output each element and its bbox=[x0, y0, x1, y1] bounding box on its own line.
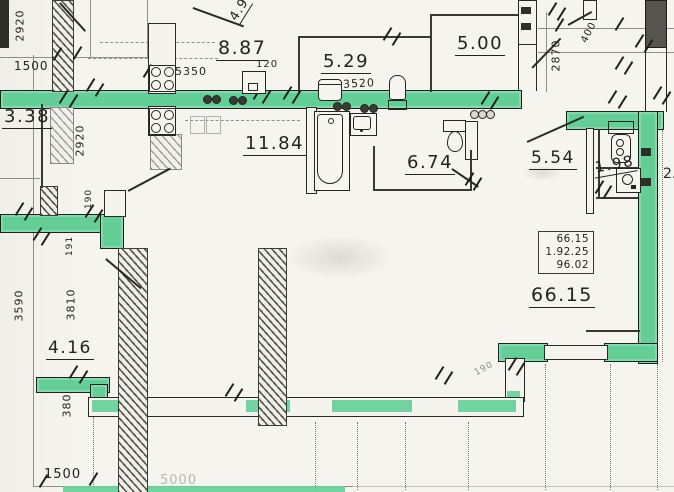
dimension-label: 2870 bbox=[550, 40, 563, 72]
door-mark bbox=[333, 102, 342, 111]
partition-line bbox=[373, 146, 375, 191]
axis-line bbox=[545, 364, 546, 490]
dimension-label: 5000 bbox=[160, 473, 197, 488]
break-mark bbox=[383, 27, 393, 41]
leader-line bbox=[128, 168, 171, 192]
door-mark bbox=[342, 102, 351, 111]
gas-stove-icon bbox=[149, 65, 176, 92]
wall-highlight-patch bbox=[332, 400, 412, 412]
room-area-label: 5.54 bbox=[529, 148, 577, 170]
counter-unit bbox=[206, 116, 221, 134]
dimension-label: 120 bbox=[256, 59, 278, 70]
break-mark bbox=[635, 34, 645, 48]
break-mark bbox=[548, 2, 558, 16]
room-area-label: 8.87 bbox=[216, 37, 268, 61]
dimension-label: 1500 bbox=[44, 467, 81, 482]
room-area-label: 2. bbox=[663, 166, 674, 182]
break-mark bbox=[435, 366, 445, 380]
partition-line bbox=[430, 14, 518, 16]
counter-line bbox=[88, 58, 148, 59]
washbasin-icon bbox=[350, 113, 377, 136]
door-mark bbox=[212, 95, 221, 104]
dimension-line bbox=[0, 178, 40, 179]
wall-end-piece bbox=[0, 0, 9, 48]
partition-line bbox=[298, 36, 430, 38]
counter-line bbox=[174, 58, 218, 59]
break-mark bbox=[41, 232, 51, 246]
hatched-wall bbox=[118, 248, 148, 492]
partition-line bbox=[430, 14, 432, 92]
axis-line bbox=[610, 364, 611, 490]
door-mark bbox=[486, 110, 495, 119]
area-table: 66.15 1.92.25 96.02 bbox=[538, 231, 594, 274]
water-heater-icon bbox=[389, 75, 406, 100]
dimension-label: 3590 bbox=[13, 284, 26, 328]
dimension-tick bbox=[555, 18, 565, 32]
door-mark bbox=[238, 96, 247, 105]
partition-line bbox=[586, 330, 640, 332]
dimension-label: 380 bbox=[61, 389, 74, 423]
break-mark bbox=[624, 61, 634, 75]
partition-line bbox=[373, 189, 472, 191]
gas-stove-icon bbox=[149, 108, 176, 135]
door-mark bbox=[641, 148, 651, 156]
dimension-label: 2920 bbox=[74, 119, 87, 163]
column-mark bbox=[521, 23, 531, 30]
bathtub-icon bbox=[314, 111, 350, 191]
axis-line bbox=[657, 364, 658, 490]
load-bearing-wall bbox=[100, 214, 124, 249]
room-area-label: 3.38 bbox=[2, 106, 52, 129]
washing-machine-icon bbox=[318, 79, 342, 101]
pier-column bbox=[583, 0, 597, 20]
door-mark bbox=[229, 96, 238, 105]
axis-line bbox=[468, 422, 469, 490]
area-table-row: 66.15 bbox=[543, 233, 589, 246]
dimension-line bbox=[90, 0, 91, 57]
axis-line bbox=[662, 130, 663, 362]
break-mark bbox=[618, 95, 628, 109]
dimension-label: 190 bbox=[473, 360, 496, 378]
bottom-highlight-bar bbox=[63, 486, 345, 492]
kitchen-sink-icon bbox=[242, 71, 266, 94]
partition-wall bbox=[544, 345, 608, 360]
room-area-label: 5.00 bbox=[455, 33, 505, 56]
partition-line bbox=[470, 150, 472, 191]
wall-edge bbox=[518, 43, 537, 91]
door-mark bbox=[641, 178, 651, 186]
dimension-label: 3810 bbox=[65, 283, 78, 327]
pier-column bbox=[645, 0, 667, 48]
dimension-line bbox=[353, 486, 674, 487]
dimension-label: 3520 bbox=[343, 76, 376, 91]
partition-wall bbox=[104, 190, 126, 217]
dimension-label: 190 bbox=[84, 188, 94, 210]
toilet-icon bbox=[447, 131, 463, 152]
scan-smudge bbox=[285, 235, 395, 280]
partition-line bbox=[298, 36, 300, 92]
hatched-wall bbox=[50, 107, 74, 164]
break-mark bbox=[444, 371, 454, 385]
room-area-label: 11.84 bbox=[243, 133, 306, 156]
water-heater-icon bbox=[388, 100, 407, 110]
door-mark bbox=[360, 104, 369, 113]
axis-line bbox=[315, 422, 316, 490]
load-bearing-wall bbox=[604, 343, 658, 362]
hatched-wall bbox=[40, 186, 58, 216]
column-mark bbox=[521, 7, 531, 14]
break-mark bbox=[615, 56, 625, 70]
hatched-wall bbox=[150, 134, 182, 170]
dimension-label: 1500 bbox=[14, 59, 49, 73]
dimension-label: 191 bbox=[65, 235, 75, 257]
floor-plan-canvas: 4.9 8.87 5.29 5.00 3.38 11.84 6.74 5.54 … bbox=[0, 0, 674, 492]
break-mark bbox=[225, 383, 235, 397]
room-area-label: 4.16 bbox=[46, 338, 94, 360]
total-area-label: 66.15 bbox=[529, 284, 595, 308]
hatched-wall bbox=[258, 248, 287, 426]
dimension-label: 5350 bbox=[175, 65, 207, 78]
toilet-icon bbox=[608, 121, 634, 134]
area-table-row: 1.92.25 bbox=[543, 246, 589, 259]
axis-line bbox=[405, 422, 406, 490]
door-mark bbox=[203, 95, 212, 104]
area-table-row: 96.02 bbox=[543, 259, 589, 272]
room-area-label: 6.74 bbox=[405, 152, 455, 175]
counter-unit bbox=[190, 116, 205, 134]
axis-line bbox=[357, 422, 358, 490]
wall-highlight-patch bbox=[458, 400, 516, 412]
break-mark bbox=[608, 90, 618, 104]
room-area-label: 5.29 bbox=[321, 51, 371, 74]
break-mark bbox=[392, 32, 402, 46]
door-mark bbox=[369, 104, 378, 113]
dimension-label: 400 bbox=[579, 19, 600, 45]
dimension-label: 2920 bbox=[14, 4, 27, 48]
